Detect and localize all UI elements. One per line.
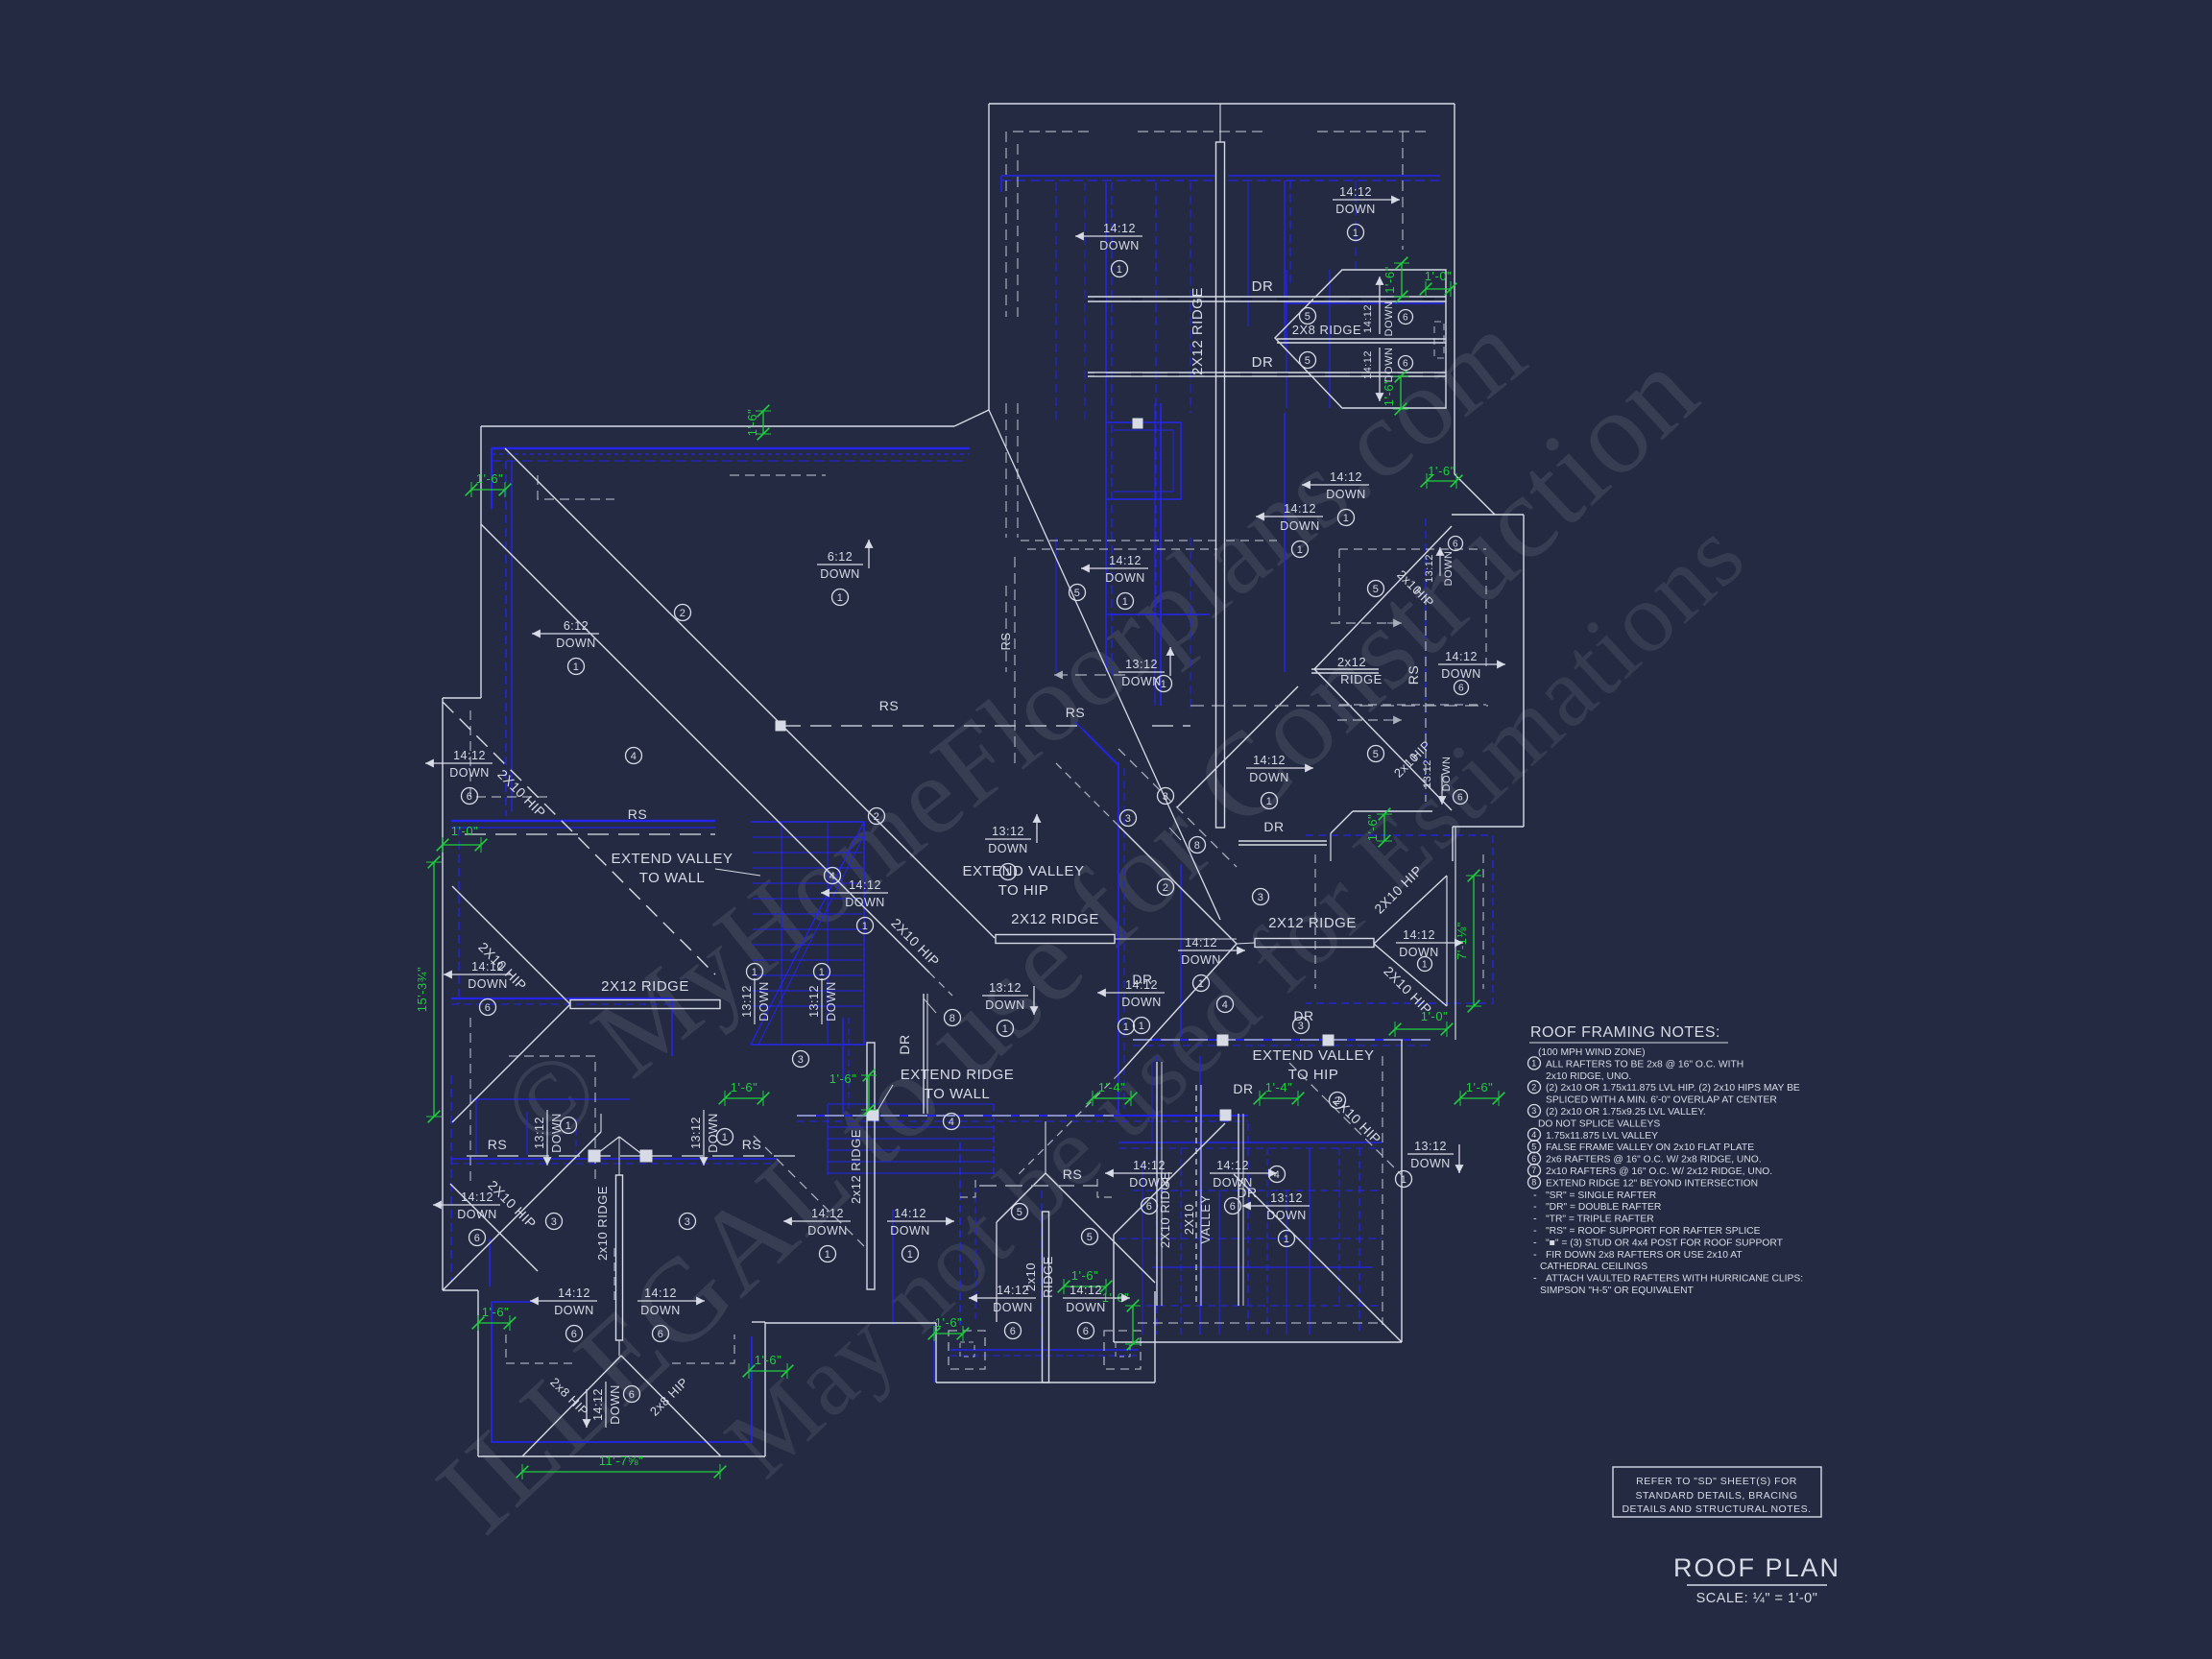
svg-text:1: 1 <box>722 1132 729 1143</box>
svg-text:14:12: 14:12 <box>591 1388 605 1421</box>
svg-text:RS: RS <box>1406 665 1421 685</box>
svg-text:13:12: 13:12 <box>1422 759 1433 788</box>
svg-text:1: 1 <box>825 1249 831 1261</box>
svg-text:2x6 RAFTERS @ 16" O.C. W/ 2x8: 2x6 RAFTERS @ 16" O.C. W/ 2x8 RIDGE, UNO… <box>1546 1155 1762 1166</box>
svg-text:ALL RAFTERS TO BE 2x8 @ 16" O.: ALL RAFTERS TO BE 2x8 @ 16" O.C. WITH <box>1546 1059 1743 1070</box>
svg-text:1: 1 <box>1005 867 1012 878</box>
svg-text:(2) 2x10 OR 1.75x9.25 LVL VALL: (2) 2x10 OR 1.75x9.25 LVL VALLEY. <box>1546 1107 1706 1118</box>
svg-text:DOWN: DOWN <box>1410 1157 1451 1170</box>
svg-text:TO WALL: TO WALL <box>925 1086 991 1102</box>
svg-text:DR: DR <box>1132 972 1152 987</box>
svg-text:DOWN: DOWN <box>825 981 838 1022</box>
svg-text:RIDGE: RIDGE <box>1041 1256 1055 1298</box>
svg-text:DR: DR <box>1233 1081 1253 1096</box>
svg-text:1: 1 <box>1123 1022 1130 1033</box>
svg-text:DOWN: DOWN <box>609 1384 622 1425</box>
svg-text:1: 1 <box>1002 1023 1009 1035</box>
svg-text:14:12: 14:12 <box>453 749 486 762</box>
svg-text:ROOF FRAMING NOTES:: ROOF FRAMING NOTES: <box>1530 1024 1720 1041</box>
svg-text:-: - <box>1533 1225 1537 1237</box>
svg-text:SPLICED WITH A MIN. 6'-0" OVER: SPLICED WITH A MIN. 6'-0" OVERLAP AT CEN… <box>1546 1095 1777 1106</box>
svg-text:2X12 RIDGE: 2X12 RIDGE <box>1190 287 1206 375</box>
svg-text:DOWN: DOWN <box>985 998 1025 1012</box>
svg-text:(100 MPH WIND ZONE): (100 MPH WIND ZONE) <box>1538 1047 1646 1058</box>
svg-text:DOWN: DOWN <box>550 1113 564 1153</box>
svg-text:3: 3 <box>1531 1106 1537 1116</box>
svg-text:2x10 RIDGE, UNO.: 2x10 RIDGE, UNO. <box>1546 1071 1631 1082</box>
svg-text:14:12: 14:12 <box>1339 185 1372 199</box>
svg-text:DO NOT SPLICE VALLEYS: DO NOT SPLICE VALLEYS <box>1538 1118 1660 1129</box>
svg-text:5: 5 <box>1087 1232 1094 1243</box>
svg-text:FALSE FRAME VALLEY ON 2x10 FLA: FALSE FRAME VALLEY ON 2x10 FLAT PLATE <box>1546 1142 1754 1153</box>
svg-text:5: 5 <box>1373 749 1380 760</box>
svg-text:1.75x11.875 LVL VALLEY: 1.75x11.875 LVL VALLEY <box>1546 1131 1658 1142</box>
svg-text:6: 6 <box>571 1329 578 1340</box>
svg-text:13:12: 13:12 <box>689 1117 703 1149</box>
svg-text:DOWN: DOWN <box>1249 771 1289 784</box>
svg-text:13:12: 13:12 <box>740 985 754 1018</box>
svg-text:3: 3 <box>1163 791 1169 803</box>
svg-text:1'-6": 1'-6" <box>1382 266 1397 293</box>
svg-text:2X10 RIDGE: 2X10 RIDGE <box>1158 1171 1172 1248</box>
svg-text:RS: RS <box>1066 705 1085 720</box>
svg-text:DOWN: DOWN <box>1121 996 1162 1009</box>
svg-text:1: 1 <box>1198 978 1205 990</box>
svg-text:14:12: 14:12 <box>1216 1159 1249 1172</box>
svg-text:STANDARD DETAILS, BRACING: STANDARD DETAILS, BRACING <box>1635 1490 1797 1502</box>
svg-text:14:12: 14:12 <box>1445 650 1478 663</box>
svg-text:DR: DR <box>897 1034 912 1054</box>
svg-text:14:12: 14:12 <box>1109 554 1142 567</box>
svg-text:DOWN: DOWN <box>1443 551 1455 587</box>
svg-text:-: - <box>1533 1249 1537 1261</box>
svg-text:1: 1 <box>1139 1021 1145 1032</box>
svg-text:13:12: 13:12 <box>1414 1140 1447 1153</box>
svg-text:DOWN: DOWN <box>845 896 885 909</box>
svg-text:6: 6 <box>1146 1201 1153 1213</box>
svg-text:14:12: 14:12 <box>1330 470 1362 484</box>
svg-text:1: 1 <box>573 661 580 673</box>
svg-text:1'-6": 1'-6" <box>731 1080 757 1094</box>
svg-text:1'-6": 1'-6" <box>1466 1080 1493 1094</box>
svg-text:3: 3 <box>1125 813 1132 825</box>
svg-text:ATTACH VAULTED RAFTERS WITH HU: ATTACH VAULTED RAFTERS WITH HURRICANE CL… <box>1546 1274 1803 1285</box>
svg-text:REFER TO "SD" SHEET(S) FOR: REFER TO "SD" SHEET(S) FOR <box>1636 1476 1797 1487</box>
svg-text:-: - <box>1533 1201 1537 1213</box>
svg-text:4: 4 <box>949 1117 955 1128</box>
svg-text:14:12: 14:12 <box>461 1190 493 1204</box>
svg-text:6: 6 <box>485 1002 492 1014</box>
svg-text:4: 4 <box>1531 1130 1537 1140</box>
svg-text:-: - <box>1533 1214 1537 1225</box>
svg-text:-: - <box>1533 1273 1537 1285</box>
svg-text:4: 4 <box>631 751 637 762</box>
svg-text:DOWN: DOWN <box>1399 946 1439 959</box>
svg-text:6: 6 <box>1453 540 1458 550</box>
svg-text:1'-0": 1'-0" <box>451 824 478 838</box>
svg-text:DR: DR <box>1252 354 1274 371</box>
svg-text:8: 8 <box>950 1013 956 1024</box>
svg-text:DOWN: DOWN <box>468 977 508 991</box>
svg-text:4: 4 <box>1222 999 1229 1011</box>
svg-text:DOWN: DOWN <box>890 1224 930 1238</box>
svg-text:2: 2 <box>1531 1082 1537 1092</box>
svg-text:2: 2 <box>680 608 686 619</box>
svg-text:"TR" = TRIPLE RAFTER: "TR" = TRIPLE RAFTER <box>1546 1214 1654 1225</box>
svg-text:14:12: 14:12 <box>1362 304 1374 333</box>
svg-text:6:12: 6:12 <box>564 619 589 633</box>
svg-text:14:12: 14:12 <box>1103 222 1136 235</box>
svg-text:3: 3 <box>551 1216 558 1228</box>
svg-text:DOWN: DOWN <box>1383 301 1395 337</box>
svg-text:ROOF PLAN: ROOF PLAN <box>1673 1553 1840 1582</box>
svg-text:1: 1 <box>837 592 844 604</box>
svg-text:14:12: 14:12 <box>1253 754 1286 767</box>
svg-text:DOWN: DOWN <box>993 1301 1033 1314</box>
svg-text:14:12: 14:12 <box>471 960 504 974</box>
svg-text:1'-6": 1'-6" <box>745 409 759 436</box>
svg-text:14:12: 14:12 <box>1185 936 1217 950</box>
svg-text:14:12: 14:12 <box>997 1284 1029 1297</box>
svg-text:-: - <box>1533 1190 1537 1201</box>
svg-text:15'-3¾": 15'-3¾" <box>415 967 429 1012</box>
svg-text:DOWN: DOWN <box>640 1304 681 1317</box>
svg-text:2X12 RIDGE: 2X12 RIDGE <box>1268 915 1357 931</box>
svg-text:1'-6": 1'-6" <box>755 1353 781 1367</box>
svg-text:7: 7 <box>1531 1166 1537 1175</box>
svg-text:2X10: 2X10 <box>1182 1204 1196 1235</box>
svg-text:5: 5 <box>1373 584 1380 595</box>
svg-text:-: - <box>1533 1237 1537 1248</box>
svg-text:6: 6 <box>1403 313 1408 324</box>
svg-text:DOWN: DOWN <box>1266 1209 1307 1222</box>
svg-text:1'-0": 1'-0" <box>1425 269 1452 283</box>
svg-text:DR: DR <box>1237 1185 1257 1200</box>
svg-text:1: 1 <box>819 967 826 978</box>
svg-text:DOWN: DOWN <box>1280 519 1320 533</box>
svg-text:(2) 2x10 OR 1.75x11.875 LVL HI: (2) 2x10 OR 1.75x11.875 LVL HIP. (2) 2x1… <box>1546 1083 1800 1094</box>
svg-text:"RS" = ROOF SUPPORT FOR RAFTER: "RS" = ROOF SUPPORT FOR RAFTER SPLICE <box>1546 1226 1761 1237</box>
svg-text:DOWN: DOWN <box>1335 203 1376 216</box>
svg-text:DOWN: DOWN <box>457 1208 497 1221</box>
svg-text:8: 8 <box>1194 840 1201 852</box>
svg-text:8: 8 <box>1531 1178 1537 1188</box>
svg-text:14:12: 14:12 <box>1133 1159 1166 1172</box>
svg-text:FIR DOWN 2x8 RAFTERS OR USE 2x: FIR DOWN 2x8 RAFTERS OR USE 2x10 AT <box>1546 1250 1743 1261</box>
svg-text:1: 1 <box>1161 679 1167 690</box>
svg-text:DOWN: DOWN <box>1441 667 1481 681</box>
svg-text:2x10 RAFTERS @ 16" O.C. W/ 2x1: 2x10 RAFTERS @ 16" O.C. W/ 2x12 RIDGE, U… <box>1546 1166 1772 1177</box>
svg-text:1'-6": 1'-6" <box>1365 814 1380 841</box>
svg-text:EXTEND RIDGE: EXTEND RIDGE <box>901 1067 1015 1083</box>
svg-text:6: 6 <box>658 1329 664 1340</box>
svg-text:DOWN: DOWN <box>1383 348 1395 383</box>
svg-text:1: 1 <box>1266 796 1273 807</box>
svg-text:RS: RS <box>628 806 647 822</box>
svg-text:DOWN: DOWN <box>1181 953 1221 967</box>
svg-text:RIDGE: RIDGE <box>1340 672 1382 686</box>
svg-text:1: 1 <box>1297 544 1304 556</box>
svg-text:TO HIP: TO HIP <box>1288 1067 1339 1083</box>
svg-text:1: 1 <box>752 967 758 978</box>
svg-text:1'-6": 1'-6" <box>476 471 503 486</box>
svg-text:5: 5 <box>1017 1207 1023 1218</box>
svg-text:CATHEDRAL CEILINGS: CATHEDRAL CEILINGS <box>1540 1262 1647 1272</box>
svg-text:DOWN: DOWN <box>556 637 596 650</box>
svg-text:EXTEND VALLEY: EXTEND VALLEY <box>611 851 733 867</box>
svg-text:14:12: 14:12 <box>894 1207 926 1220</box>
svg-text:5: 5 <box>1074 588 1081 599</box>
svg-text:DR: DR <box>1252 278 1274 295</box>
svg-text:1'-4": 1'-4" <box>1098 1080 1125 1094</box>
svg-text:6:12: 6:12 <box>828 550 853 564</box>
svg-text:14:12: 14:12 <box>1362 350 1374 379</box>
svg-text:1'-6": 1'-6" <box>935 1315 962 1330</box>
svg-text:5: 5 <box>1305 311 1311 323</box>
svg-text:14:12: 14:12 <box>1284 502 1316 516</box>
svg-text:2X12 RIDGE: 2X12 RIDGE <box>601 978 689 995</box>
svg-text:VALLEY: VALLEY <box>1198 1194 1213 1243</box>
svg-text:1: 1 <box>1122 596 1129 608</box>
svg-text:SCALE: ¼" = 1'-0": SCALE: ¼" = 1'-0" <box>1696 1591 1818 1606</box>
svg-text:13:12: 13:12 <box>1125 658 1158 671</box>
svg-text:1'-6": 1'-6" <box>1071 1268 1098 1283</box>
svg-text:14:12: 14:12 <box>849 878 881 892</box>
svg-text:DR: DR <box>1293 1008 1313 1023</box>
svg-text:6: 6 <box>1010 1326 1017 1337</box>
svg-text:RS: RS <box>1063 1166 1082 1182</box>
svg-text:DOWN: DOWN <box>1326 488 1366 501</box>
svg-text:2x12 RIDGE: 2x12 RIDGE <box>849 1129 863 1204</box>
svg-text:13:12: 13:12 <box>807 985 821 1018</box>
svg-text:3: 3 <box>1258 892 1264 903</box>
svg-text:2X12 RIDGE: 2X12 RIDGE <box>1011 911 1099 927</box>
svg-text:DOWN: DOWN <box>1105 571 1145 585</box>
svg-text:4: 4 <box>829 871 836 882</box>
svg-text:TO WALL: TO WALL <box>639 870 706 886</box>
svg-text:11'-7⅝": 11'-7⅝" <box>599 1454 644 1468</box>
svg-text:14:12: 14:12 <box>1403 928 1435 942</box>
svg-text:1: 1 <box>907 1249 914 1261</box>
svg-text:6: 6 <box>1458 684 1464 694</box>
svg-text:DOWN: DOWN <box>1066 1301 1106 1314</box>
svg-text:6: 6 <box>1531 1154 1537 1164</box>
svg-text:14:12: 14:12 <box>1070 1284 1102 1297</box>
svg-text:1: 1 <box>1117 264 1123 276</box>
svg-text:TO HIP: TO HIP <box>998 882 1049 899</box>
svg-text:EXTEND RIDGE 12" BEYOND INTERS: EXTEND RIDGE 12" BEYOND INTERSECTION <box>1546 1178 1758 1189</box>
svg-text:1: 1 <box>1284 1234 1290 1245</box>
svg-text:2X8 RIDGE: 2X8 RIDGE <box>1292 323 1361 337</box>
svg-text:1'-6": 1'-6" <box>829 1071 856 1086</box>
svg-text:1: 1 <box>1422 960 1428 971</box>
svg-text:1'-6": 1'-6" <box>482 1305 509 1319</box>
svg-text:"SR" = SINGLE RAFTER: "SR" = SINGLE RAFTER <box>1546 1190 1656 1201</box>
svg-text:2: 2 <box>1163 882 1169 894</box>
svg-text:1: 1 <box>1353 228 1359 239</box>
svg-text:13:12: 13:12 <box>533 1117 546 1149</box>
svg-text:6: 6 <box>629 1389 636 1401</box>
svg-text:1: 1 <box>1531 1059 1537 1069</box>
svg-text:DOWN: DOWN <box>820 567 860 581</box>
svg-text:14:12: 14:12 <box>558 1286 590 1300</box>
svg-text:DETAILS AND STRUCTURAL NOTES.: DETAILS AND STRUCTURAL NOTES. <box>1622 1503 1811 1515</box>
svg-text:13:12: 13:12 <box>989 981 1022 995</box>
svg-text:5: 5 <box>1305 355 1311 367</box>
svg-text:13:12: 13:12 <box>992 825 1024 838</box>
svg-text:13:12: 13:12 <box>1270 1191 1303 1205</box>
svg-text:RS: RS <box>742 1137 761 1152</box>
svg-text:6: 6 <box>1083 1326 1090 1337</box>
svg-text:1: 1 <box>1401 1174 1407 1186</box>
svg-text:1'-6": 1'-6" <box>1428 464 1455 478</box>
svg-text:6: 6 <box>1230 1201 1237 1213</box>
svg-text:5: 5 <box>1531 1142 1537 1151</box>
svg-text:EXTEND VALLEY: EXTEND VALLEY <box>1252 1047 1374 1064</box>
svg-text:DR: DR <box>1263 819 1284 834</box>
svg-text:RS: RS <box>879 698 899 713</box>
svg-text:6: 6 <box>1403 359 1408 370</box>
svg-text:6: 6 <box>1457 793 1463 804</box>
svg-text:14:12: 14:12 <box>644 1286 677 1300</box>
svg-text:DOWN: DOWN <box>757 981 771 1022</box>
svg-text:6: 6 <box>474 1233 481 1244</box>
svg-text:"■" = (3) STUD OR 4x4 POST FO: "■" = (3) STUD OR 4x4 POST FOR ROOF SUPP… <box>1546 1238 1784 1248</box>
svg-text:DOWN: DOWN <box>1441 757 1453 792</box>
svg-text:DOWN: DOWN <box>554 1304 594 1317</box>
svg-text:RS: RS <box>488 1137 507 1152</box>
svg-text:1: 1 <box>1343 513 1350 524</box>
svg-text:DOWN: DOWN <box>449 766 490 780</box>
svg-text:13:12: 13:12 <box>1424 554 1435 583</box>
svg-text:14:12: 14:12 <box>811 1207 844 1220</box>
svg-text:3: 3 <box>798 1054 805 1066</box>
svg-text:SIMPSON "H-5" OR EQUIVALENT: SIMPSON "H-5" OR EQUIVALENT <box>1540 1286 1695 1296</box>
svg-text:2: 2 <box>874 811 880 823</box>
svg-text:"DR" = DOUBLE RAFTER: "DR" = DOUBLE RAFTER <box>1546 1202 1661 1213</box>
svg-text:3: 3 <box>685 1216 691 1228</box>
svg-text:1: 1 <box>565 1120 572 1132</box>
svg-text:DOWN: DOWN <box>807 1224 848 1238</box>
svg-text:1: 1 <box>862 921 869 932</box>
svg-text:DOWN: DOWN <box>988 842 1028 855</box>
svg-text:RS: RS <box>998 632 1013 650</box>
svg-text:2x10 RIDGE: 2x10 RIDGE <box>595 1186 610 1261</box>
svg-text:4: 4 <box>1274 1169 1281 1181</box>
svg-text:6: 6 <box>467 791 473 803</box>
svg-text:DOWN: DOWN <box>1099 239 1140 252</box>
svg-text:EXTEND VALLEY: EXTEND VALLEY <box>962 863 1084 879</box>
svg-text:2x12: 2x12 <box>1337 655 1366 669</box>
